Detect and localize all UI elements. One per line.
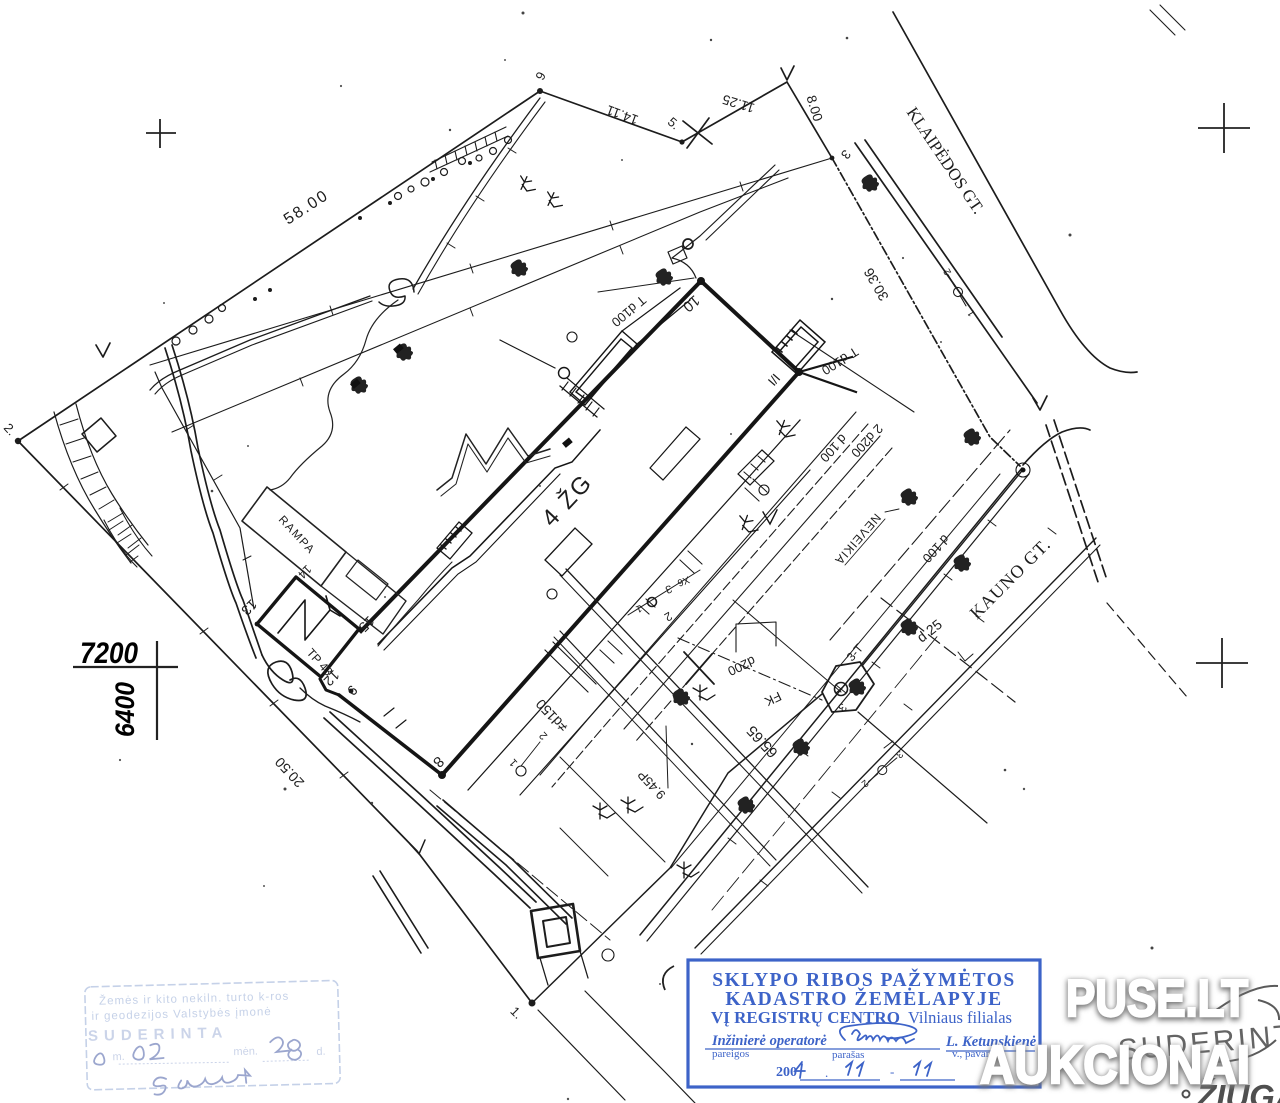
svg-text:-: -	[890, 1064, 894, 1079]
svg-text:mėn.: mėn.	[233, 1045, 258, 1058]
svg-text:KADASTRO ŽEMĖLAPYJE: KADASTRO ŽEMĖLAPYJE	[725, 988, 1002, 1010]
svg-text:Inžinierė operatorė: Inžinierė operatorė	[711, 1033, 827, 1049]
svg-text:7200: 7200	[80, 637, 138, 670]
svg-text:parašas: parašas	[832, 1049, 864, 1061]
svg-text:pareigos: pareigos	[712, 1048, 749, 1060]
svg-text:200: 200	[776, 1065, 797, 1080]
svg-text:AUKCIONAI: AUKCIONAI	[980, 1035, 1250, 1095]
svg-text:SKLYPO RIBOS PAŽYMĖTOS: SKLYPO RIBOS PAŽYMĖTOS	[712, 969, 1016, 991]
svg-text:Vilniaus filialas: Vilniaus filialas	[908, 1008, 1012, 1027]
svg-text:PUSE.LT: PUSE.LT	[1066, 970, 1248, 1028]
svg-text:m.: m.	[112, 1051, 125, 1063]
svg-text:d.: d.	[316, 1046, 325, 1058]
svg-text:.: .	[825, 1065, 828, 1080]
svg-text:6400: 6400	[110, 682, 140, 737]
